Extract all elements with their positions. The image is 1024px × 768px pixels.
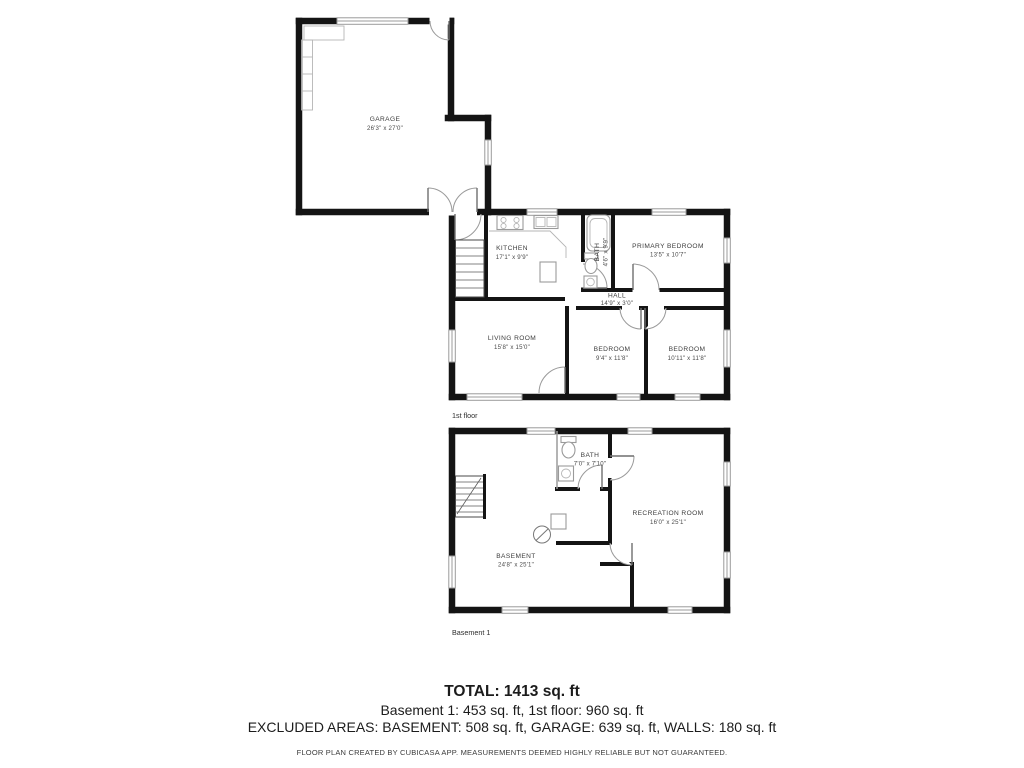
room-label-bedroom-right-name: BEDROOM xyxy=(669,346,706,353)
door-entry xyxy=(455,214,481,240)
fridge-icon xyxy=(540,262,556,282)
room-label-living-room-dims: 15'8" x 15'0" xyxy=(494,344,530,351)
window-icon xyxy=(502,607,528,614)
window-icon xyxy=(724,330,731,367)
room-label-garage-dims: 26'3" x 27'0" xyxy=(367,125,403,132)
room-label-hall-dims: 14'9" x 3'0" xyxy=(601,300,633,307)
room-label-primary-bedroom-dims: 13'5" x 10'7" xyxy=(650,252,686,259)
room-label-hall-name: HALL xyxy=(608,293,626,300)
window-icon xyxy=(527,209,557,216)
water-heater-icon xyxy=(551,514,566,529)
room-label-bath-basement-name: BATH xyxy=(581,452,600,459)
window-icon xyxy=(617,394,640,401)
basement-caption: Basement 1 xyxy=(452,628,490,637)
window-icon xyxy=(337,18,408,25)
stairs-icon xyxy=(456,474,485,519)
window-icon xyxy=(668,607,692,614)
window-icon xyxy=(724,238,731,263)
door-bedroom-left xyxy=(620,308,641,329)
door-primary-bedroom xyxy=(633,264,659,290)
sink-icon xyxy=(584,276,597,288)
summary-footer: TOTAL: 1413 sq. ft Basement 1: 453 sq. f… xyxy=(0,682,1024,757)
door-garage-double-right xyxy=(453,188,477,212)
room-label-kitchen-name: KITCHEN xyxy=(496,245,528,252)
window-icon xyxy=(449,556,456,588)
room-label-bedroom-left-name: BEDROOM xyxy=(594,346,631,353)
window-icon xyxy=(724,462,731,486)
window-icon xyxy=(449,330,456,362)
window-icon xyxy=(485,140,492,165)
door-living-closet xyxy=(539,367,565,393)
toilet-icon xyxy=(561,437,576,459)
floor-plan-page: GARAGE 26'3" x 27'0" KITCHEN 17'1" x 9'9… xyxy=(0,0,1024,768)
basement-plan: BATH 7'0" x 7'10" RECREATION ROOM 16'0" … xyxy=(449,428,731,637)
room-label-living-room-name: LIVING ROOM xyxy=(488,335,536,342)
window-icon xyxy=(724,552,731,578)
door-recreation-bottom xyxy=(610,543,632,565)
floor-plan-canvas: GARAGE 26'3" x 27'0" KITCHEN 17'1" x 9'9… xyxy=(0,0,1024,680)
room-label-garage-name: GARAGE xyxy=(370,116,401,123)
window-icon xyxy=(628,428,652,435)
window-icon xyxy=(652,209,686,216)
room-label-bath-basement-dims: 7'0" x 7'10" xyxy=(574,461,606,468)
room-label-bedroom-right-dims: 10'11" x 11'8" xyxy=(668,355,707,362)
door-bedroom-right xyxy=(645,308,666,329)
disclaimer-text: FLOOR PLAN CREATED BY CUBICASA APP. MEAS… xyxy=(0,748,1024,757)
bath-basement-fixtures xyxy=(559,437,577,482)
stove-icon xyxy=(497,216,523,230)
room-label-bath-first-name: BATH xyxy=(594,243,601,262)
room-label-bath-first-dims: 4'6" x 9'9" xyxy=(603,238,610,267)
room-label-recreation-room-dims: 16'0" x 25'1" xyxy=(650,519,686,526)
window-icon xyxy=(675,394,700,401)
utility-icons xyxy=(534,514,567,543)
door-garage-double-left xyxy=(428,188,452,212)
doors-first-floor xyxy=(428,21,666,393)
excluded-areas-text: EXCLUDED AREAS: BASEMENT: 508 sq. ft, GA… xyxy=(0,719,1024,736)
sink-icon xyxy=(559,466,574,481)
sink-icon xyxy=(534,216,558,229)
room-label-primary-bedroom-name: PRIMARY BEDROOM xyxy=(632,243,704,250)
door-bath-basement xyxy=(578,465,602,489)
stairs-icon xyxy=(456,240,485,297)
room-label-basement-name: BASEMENT xyxy=(496,553,535,560)
room-label-basement-dims: 24'8" x 25'1" xyxy=(498,562,534,569)
floor-areas-text: Basement 1: 453 sq. ft, 1st floor: 960 s… xyxy=(0,702,1024,719)
room-label-kitchen-dims: 17'1" x 9'9" xyxy=(496,254,528,261)
garage-shelf-icon xyxy=(302,26,345,110)
window-icon xyxy=(467,394,522,401)
room-label-bedroom-left-dims: 9'4" x 11'8" xyxy=(596,355,628,362)
basement-room-labels: BATH 7'0" x 7'10" RECREATION ROOM 16'0" … xyxy=(496,452,703,569)
first-floor-plan: GARAGE 26'3" x 27'0" KITCHEN 17'1" x 9'9… xyxy=(299,17,730,420)
total-area-text: TOTAL: 1413 sq. ft xyxy=(0,682,1024,702)
doors-basement xyxy=(578,456,634,565)
door-recreation-top xyxy=(610,456,634,480)
first-floor-caption: 1st floor xyxy=(452,411,478,420)
room-label-recreation-room-name: RECREATION ROOM xyxy=(632,510,703,517)
window-icon xyxy=(527,428,555,435)
